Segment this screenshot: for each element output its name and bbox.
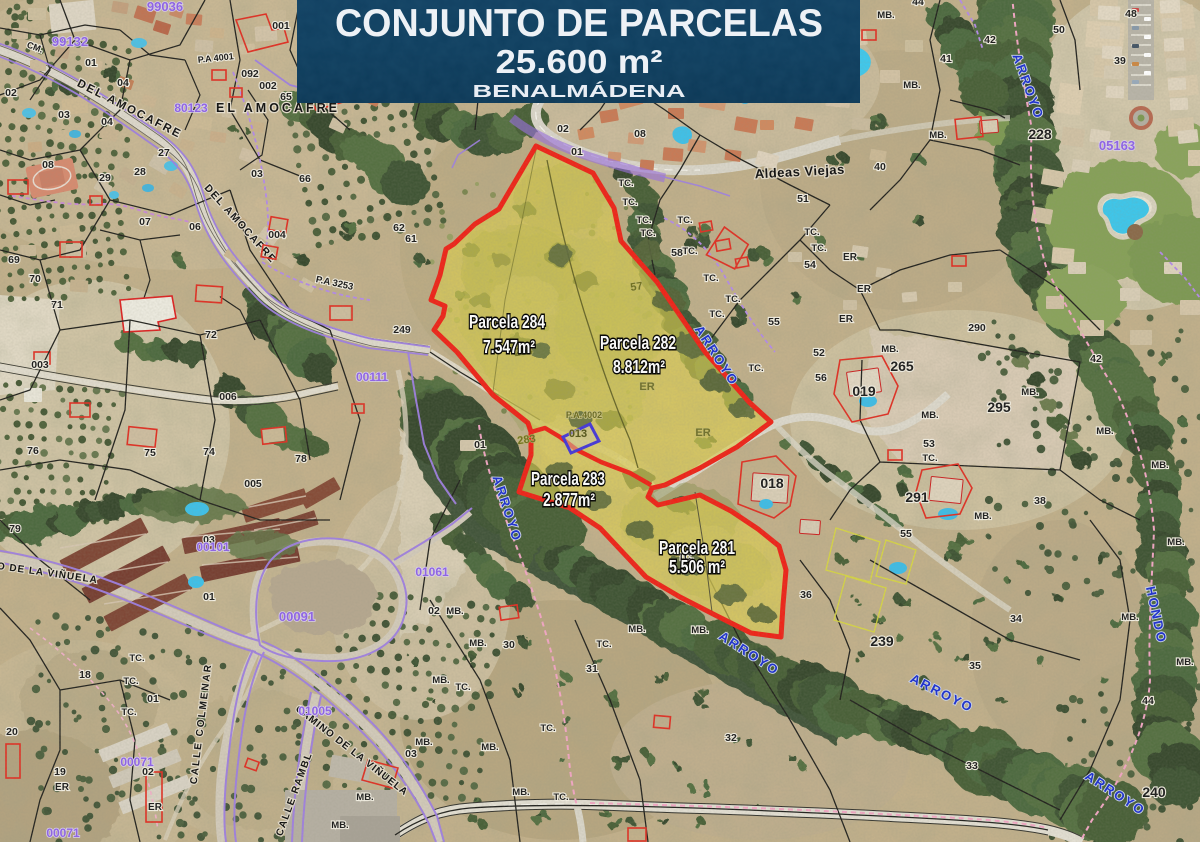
svg-text:BENALMÁDENA: BENALMÁDENA: [473, 80, 687, 101]
svg-text:25.600 m²: 25.600 m²: [496, 43, 663, 80]
svg-text:CONJUNTO DE PARCELAS: CONJUNTO DE PARCELAS: [335, 2, 823, 45]
